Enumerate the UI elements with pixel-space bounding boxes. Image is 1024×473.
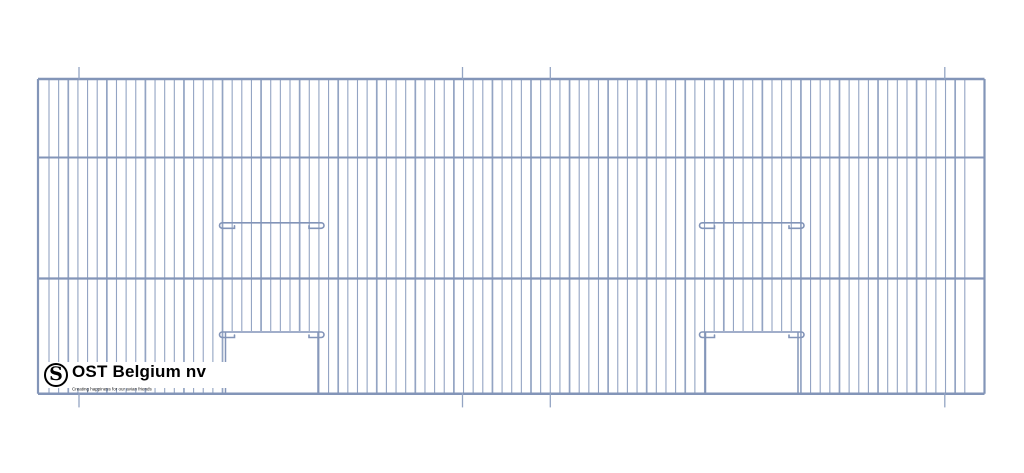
logo-text-block: OST Belgium nv Creating happiness for ou… <box>72 363 232 387</box>
company-tagline: Creating happiness for our avian friends <box>72 387 152 392</box>
company-name: OST Belgium nv <box>72 363 232 381</box>
logo: S OST Belgium nv Creating happiness for … <box>43 362 238 388</box>
logo-monogram-circle: S <box>44 363 68 387</box>
logo-monogram-letter: S <box>49 365 63 384</box>
panel-drawing-svg <box>0 0 1024 473</box>
cage-front-panel-drawing: S OST Belgium nv Creating happiness for … <box>0 0 1024 473</box>
company-tagline-wrap: Creating happiness for our avian friends <box>72 381 232 387</box>
